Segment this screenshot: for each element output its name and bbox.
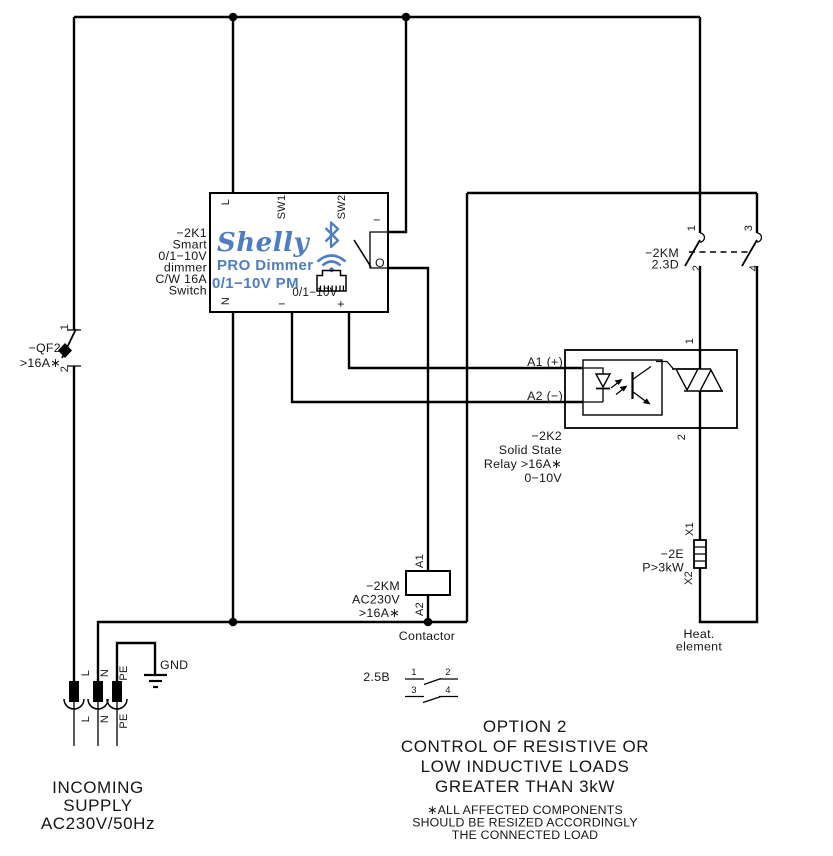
terminal-label-pe-bottom: PE (118, 713, 130, 728)
led-cathode-wire (583, 389, 603, 403)
shelly-terminal-sw2: SW2 (336, 195, 348, 220)
junction-dot (229, 618, 238, 627)
aux-contact-reference: 2.5B 1 2 3 4 (363, 667, 458, 703)
heater-x2-label: X2 (683, 571, 695, 585)
heating-element: X1 X2 −2E P>3kW Heat. element (642, 522, 722, 654)
coil-box (406, 571, 450, 595)
ssr-desc-line: Solid State (499, 443, 562, 457)
ssr-desc-line: −2K2 (532, 429, 562, 443)
junction-dot (229, 13, 238, 22)
km-terminal-1: 1 (686, 225, 698, 231)
terminal-label-n-bottom: N (99, 715, 111, 723)
option-note: OPTION 2 CONTROL OF RESISTIVE OR LOW IND… (401, 717, 649, 842)
breaker-terminal-2: 2 (59, 366, 71, 372)
ssr-terminal-1: 1 (684, 338, 696, 344)
analog-plus-label: + (337, 297, 345, 311)
km-terminal-2: 2 (691, 265, 703, 271)
aux-contact-number: 1 (411, 667, 417, 678)
ssr-a1-label: A1 (+) (527, 355, 563, 369)
analog-minus-label: − (278, 297, 286, 311)
breaker-name: −QF2 (28, 341, 61, 355)
ssr-desc-line: 0−10V (524, 471, 562, 485)
shelly-product: PRO Dimmer (217, 257, 314, 274)
ground-label: GND (160, 658, 188, 672)
coil-rating: >16A∗ (359, 606, 400, 620)
power-wiring (74, 13, 757, 700)
contact-blade (742, 240, 757, 266)
desc-line: Switch (169, 284, 207, 298)
aux-ref-label: 2.5B (363, 670, 390, 684)
heater-power: P>3kW (642, 561, 684, 575)
shelly-terminal-l: L (220, 199, 232, 205)
led-anode-wire (583, 368, 603, 374)
heater-x1-label: X1 (684, 522, 696, 536)
contact-hook (757, 233, 762, 242)
ethernet-pins (321, 286, 344, 292)
coil-a1-label: A1 (414, 554, 426, 568)
aux-contact-number: 4 (445, 685, 451, 696)
led-triangle (596, 374, 610, 387)
heater-name: −2E (661, 547, 684, 561)
terminal-pin-pe (112, 681, 122, 702)
km-terminal-4: 4 (748, 265, 760, 271)
junction-dot (424, 618, 433, 627)
wiring-diagram: −QF2 >16A∗ 1 2 L SW1 SW2 N Shelly PRO Di… (0, 0, 833, 856)
heater-caption-2: element (676, 640, 722, 654)
terminal-pin-l (69, 681, 79, 702)
contact-blade (685, 240, 700, 266)
supply-caption-line: INCOMING (52, 778, 144, 797)
shelly-logo: Shelly (217, 228, 310, 258)
supply-caption-line: SUPPLY (63, 796, 132, 815)
breaker-rating: >16A∗ (20, 356, 61, 370)
aux-contact-number: 2 (445, 667, 451, 678)
option-title: OPTION 2 (483, 717, 567, 736)
aux-blade (424, 679, 441, 685)
triac-triangle-down (676, 369, 698, 390)
output-o-label: O (375, 256, 385, 270)
breaker-terminal-1: 1 (59, 324, 71, 330)
junction-dot (402, 13, 411, 22)
emitter-arrowhead (643, 398, 651, 404)
triac-gate (656, 362, 674, 370)
output-on-label: − (373, 213, 381, 227)
shelly-model: 0/1−10V PM (212, 275, 299, 292)
shelly-terminal-sw1: SW1 (276, 195, 288, 220)
ssr-outer-box (565, 350, 737, 428)
shelly-pro-dimmer: L SW1 SW2 N Shelly PRO Dimmer 0/1−10V PM… (210, 193, 388, 312)
km-power-contacts: −2KM 2.3D 1 2 3 4 (645, 225, 761, 272)
breaker-qf2: −QF2 >16A∗ 1 2 (20, 324, 81, 372)
dimmer-description: −2K1 Smart 0/1−10V dimmer C/W 16A Switch (155, 226, 207, 298)
terminal-label-pe-top: PE (118, 665, 130, 680)
option-line: GREATER THAN 3kW (435, 777, 615, 796)
triac-triangle-up (700, 370, 722, 391)
output-to-coil (388, 268, 428, 571)
terminal-label-n-top: N (99, 669, 111, 677)
option-line: CONTROL OF RESISTIVE OR (401, 737, 649, 756)
aux-contact-number: 3 (411, 685, 417, 696)
ssr-desc-line: Relay >16A∗ (484, 457, 562, 471)
terminal-pin-n (93, 681, 103, 702)
aux-blade (423, 697, 441, 703)
contactor-coil: A1 A2 −2KM AC230V >16A∗ Contactor (352, 554, 455, 643)
km-terminal-3: 3 (743, 225, 755, 231)
analog-range-label: 0/1−10V (292, 287, 337, 299)
coil-voltage: AC230V (352, 593, 400, 607)
transistor-collector (633, 367, 652, 380)
contact-hook (700, 233, 705, 242)
km-ref: 2.3D (652, 258, 679, 272)
contactor-caption: Contactor (399, 629, 455, 643)
switch-feed-wire (388, 17, 406, 232)
ssr-a2-label: A2 (−) (527, 389, 563, 403)
option-footnote: THE CONNECTED LOAD (452, 828, 598, 842)
ground-symbol: GND (144, 658, 188, 687)
supply-caption-line: AC230V/50Hz (41, 814, 155, 833)
ssr-terminal-2: 2 (676, 434, 688, 440)
terminal-label-l-top: L (80, 670, 92, 676)
coil-name: −2KM (366, 579, 400, 593)
shelly-terminal-n: N (220, 297, 232, 305)
terminal-label-l-bottom: L (80, 716, 92, 722)
coil-a2-label: A2 (414, 602, 426, 616)
option-line: LOW INDUCTIVE LOADS (421, 757, 630, 776)
incoming-supply-caption: INCOMING SUPPLY AC230V/50Hz (41, 778, 155, 833)
heater-return (700, 266, 757, 622)
